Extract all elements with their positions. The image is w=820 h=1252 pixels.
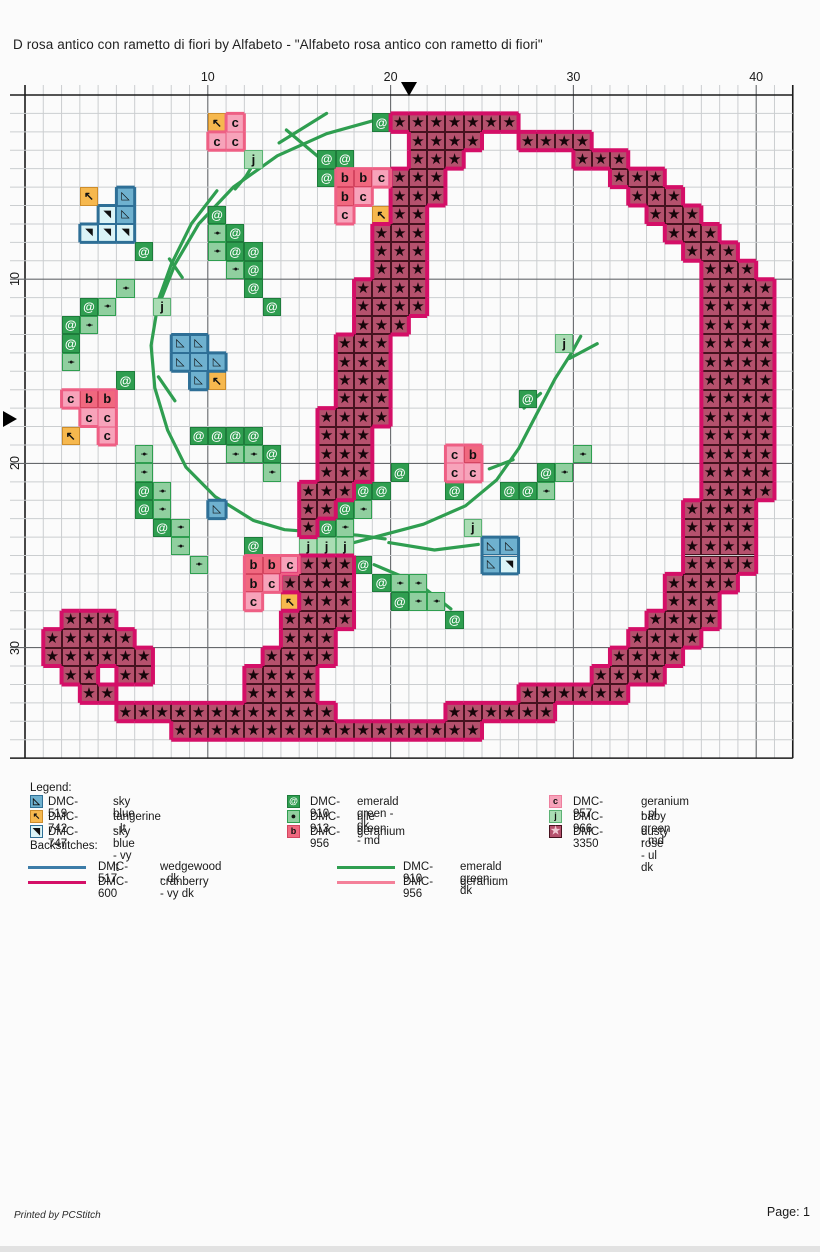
legend-code: DMC-747 [48, 826, 78, 850]
legend-swatch-dmc-519: ◺ [30, 795, 43, 808]
ruler-label-left: 30 [8, 641, 22, 655]
stitch-chart: ↖c@★★★★★★★cc★★★★★★★★j@@★★★★★★@bbc★★★★★★↖… [0, 0, 820, 775]
backstitch-line-swatch [28, 866, 86, 869]
center-marker-left-icon [3, 411, 17, 427]
legend-code: DMC-956 [310, 826, 340, 850]
backstitch-outlines [0, 0, 820, 775]
legend-name: geranium [357, 826, 405, 838]
legend-swatch-dmc-742: ↖ [30, 810, 43, 823]
legend-code: DMC-3350 [573, 826, 603, 850]
page-number-label: Page: 1 [767, 1205, 810, 1219]
pattern-page: D rosa antico con rametto di fiori by Al… [0, 0, 820, 1252]
center-marker-top-icon [401, 82, 417, 96]
ruler-label-top: 30 [566, 70, 580, 84]
page-bottom-edge [0, 1246, 820, 1252]
backstitch-line-swatch [337, 866, 395, 869]
legend-swatch-dmc-913: ● [287, 810, 300, 823]
printed-by-label: Printed by PCStitch [14, 1210, 101, 1221]
legend-name: geranium [460, 876, 508, 888]
backstitch-line-swatch [28, 881, 86, 884]
legend-swatch-dmc-966: j [549, 810, 562, 823]
legend-swatch-dmc-956: b [287, 825, 300, 838]
ruler-label-top: 20 [384, 70, 398, 84]
legend-swatch-dmc-910: @ [287, 795, 300, 808]
legend-swatch-dmc-3350: ★ [549, 825, 562, 838]
legend: Legend: Backstitches: ◺DMC-519sky blue↖D… [0, 778, 820, 898]
legend-swatch-dmc-957: c [549, 795, 562, 808]
legend-name: dusty rose - ul dk [641, 826, 669, 874]
legend-swatch-dmc-747: ◥ [30, 825, 43, 838]
ruler-label-left: 10 [8, 272, 22, 286]
ruler-label-top: 10 [201, 70, 215, 84]
legend-name: cranberry - vy dk [160, 876, 209, 900]
ruler-label-left: 20 [8, 456, 22, 470]
legend-code: DMC-600 [98, 876, 128, 900]
legend-code: DMC-956 [403, 876, 433, 900]
backstitch-line-swatch [337, 881, 395, 884]
ruler-label-top: 40 [749, 70, 763, 84]
legend-heading: Legend: [30, 782, 72, 794]
